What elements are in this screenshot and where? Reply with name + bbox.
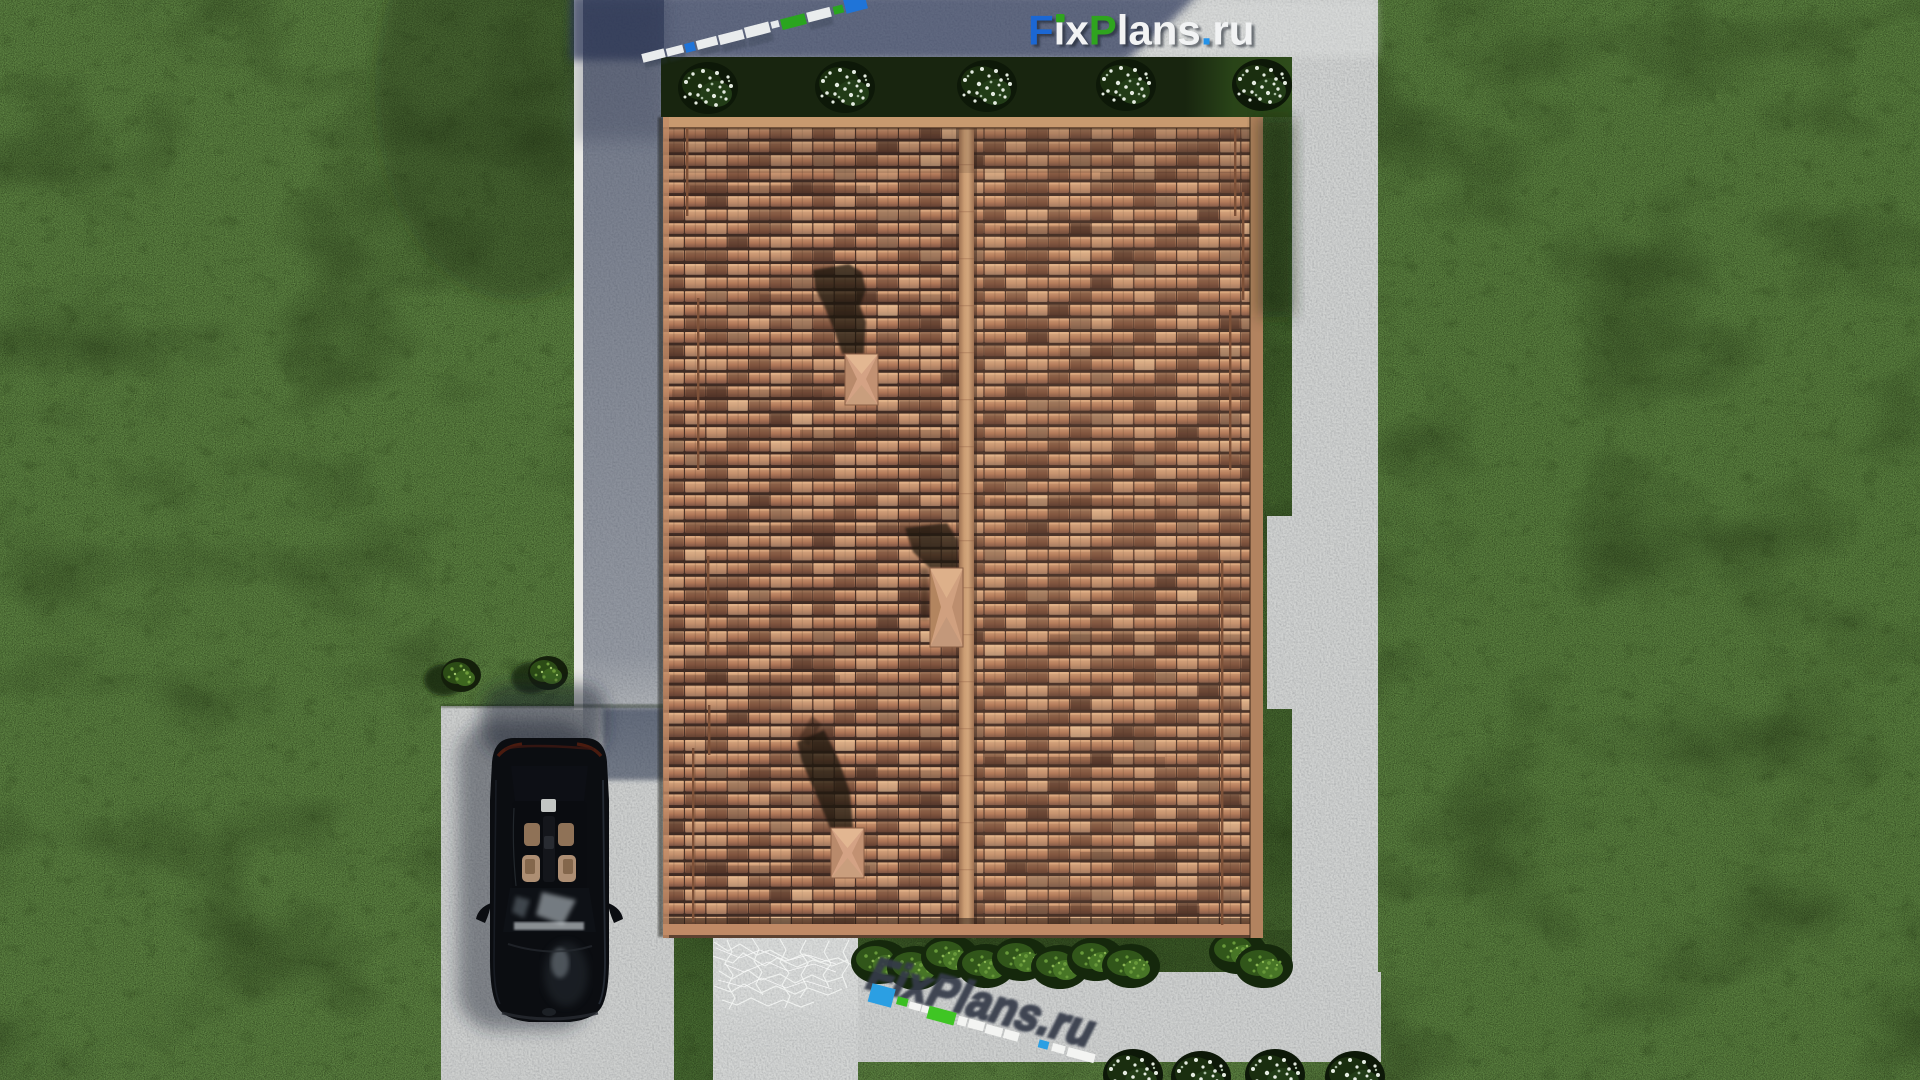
- svg-text:FıxPlans.ru: FıxPlans.ru: [1028, 7, 1254, 54]
